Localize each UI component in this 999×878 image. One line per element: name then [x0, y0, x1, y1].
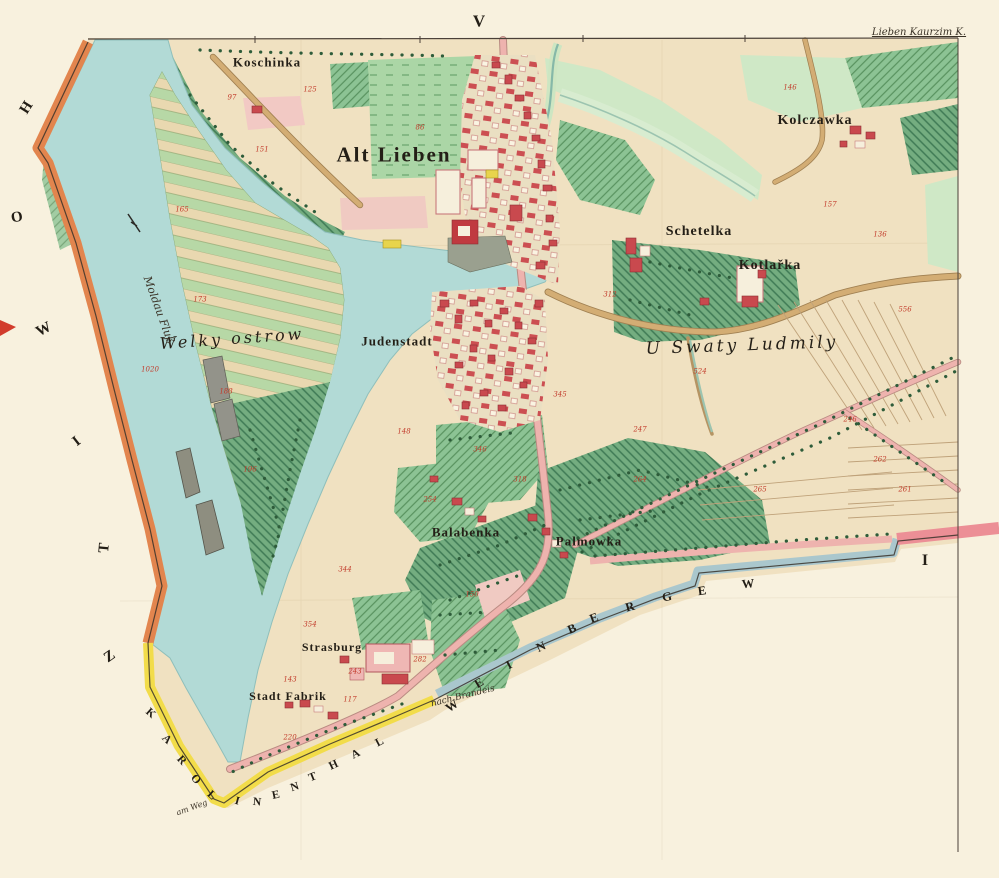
map-artwork — [0, 0, 999, 878]
cadastral-map-canvas: VILieben Kaurzim K.KoschinkaAlt LiebenKo… — [0, 0, 999, 878]
